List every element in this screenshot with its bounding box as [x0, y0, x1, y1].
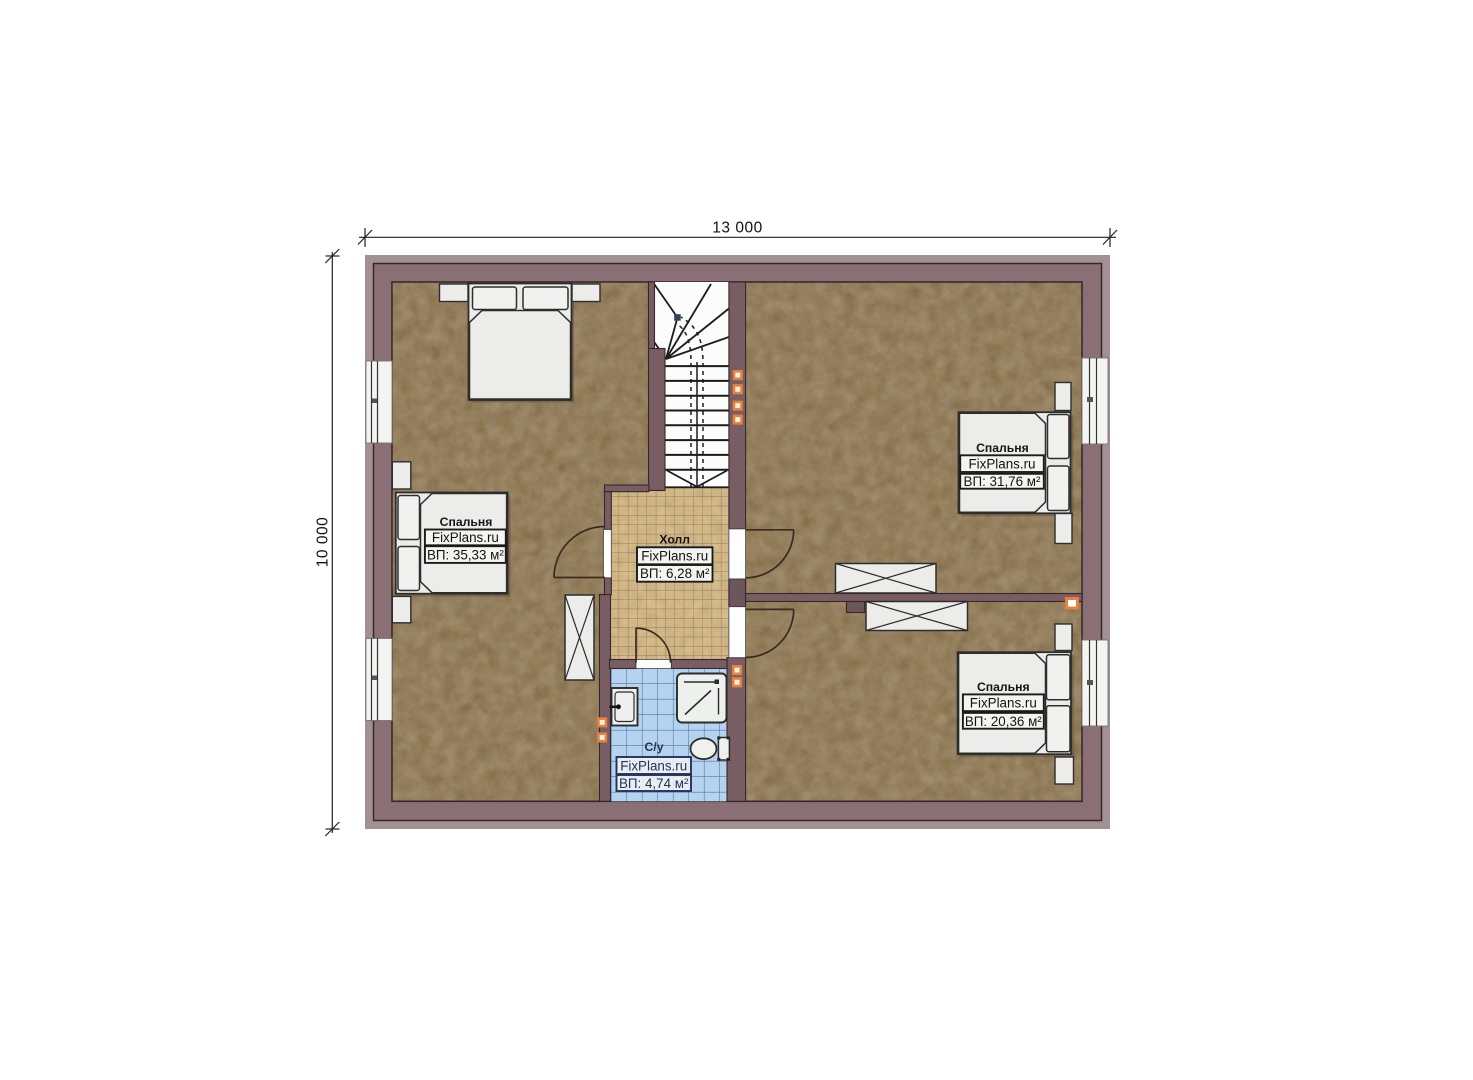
svg-text:ВП: 31,76 м²: ВП: 31,76 м²: [964, 474, 1041, 489]
svg-text:FixPlans.ru: FixPlans.ru: [432, 530, 499, 545]
svg-text:FixPlans.ru: FixPlans.ru: [970, 696, 1037, 711]
svg-text:ВП: 20,36 м²: ВП: 20,36 м²: [965, 714, 1042, 729]
svg-text:ВП: 6,28 м²: ВП: 6,28 м²: [640, 566, 710, 581]
svg-text:10 000: 10 000: [315, 517, 332, 567]
svg-text:Спальня: Спальня: [976, 441, 1029, 455]
svg-text:Холл: Холл: [659, 533, 690, 547]
svg-text:С/у: С/у: [645, 740, 664, 754]
svg-text:FixPlans.ru: FixPlans.ru: [641, 549, 708, 564]
svg-text:Спальня: Спальня: [440, 515, 493, 529]
svg-text:13 000: 13 000: [712, 220, 762, 237]
svg-text:ВП: 35,33 м²: ВП: 35,33 м²: [427, 548, 504, 563]
svg-text:ВП: 4,74 м²: ВП: 4,74 м²: [619, 776, 689, 791]
svg-text:FixPlans.ru: FixPlans.ru: [969, 457, 1036, 472]
svg-text:Спальня: Спальня: [977, 680, 1030, 694]
svg-text:FixPlans.ru: FixPlans.ru: [620, 758, 687, 773]
